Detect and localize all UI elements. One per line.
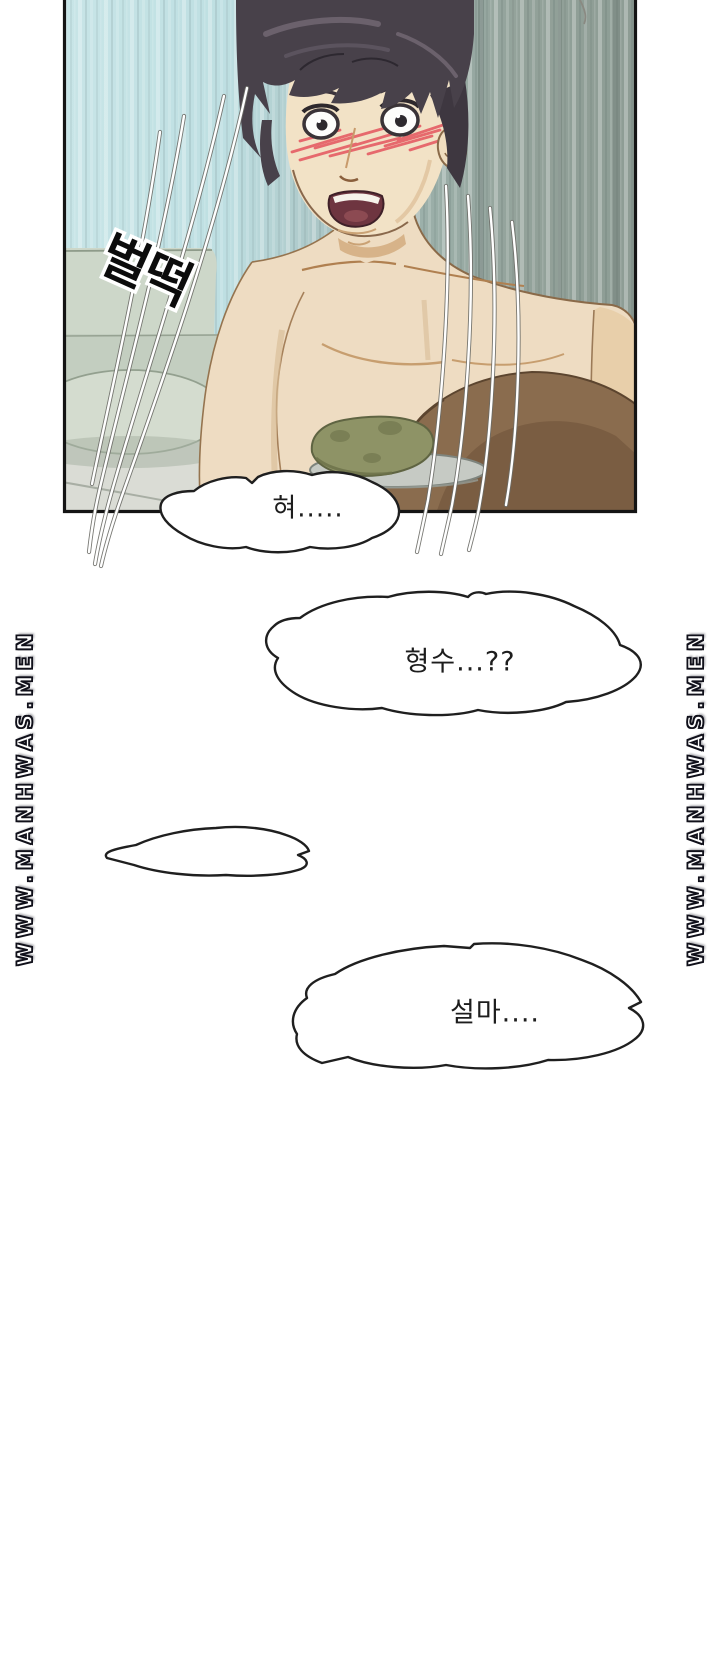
manhwa-page: 벌떡 혀..... 형수...?? 설마.... WWW.MANHWAS.MEN…: [0, 0, 720, 1667]
watermark-right: WWW.MANHWAS.MEN: [684, 646, 708, 966]
bubble-4-text: 설마....: [450, 991, 540, 1030]
panel-artwork: 벌떡: [0, 0, 720, 1667]
watermark-left: WWW.MANHWAS.MEN: [13, 646, 37, 966]
speech-bubble-3: [106, 827, 309, 876]
bubble-1-text: 혀.....: [272, 488, 343, 525]
bubble-2-text: 형수...??: [404, 640, 515, 679]
